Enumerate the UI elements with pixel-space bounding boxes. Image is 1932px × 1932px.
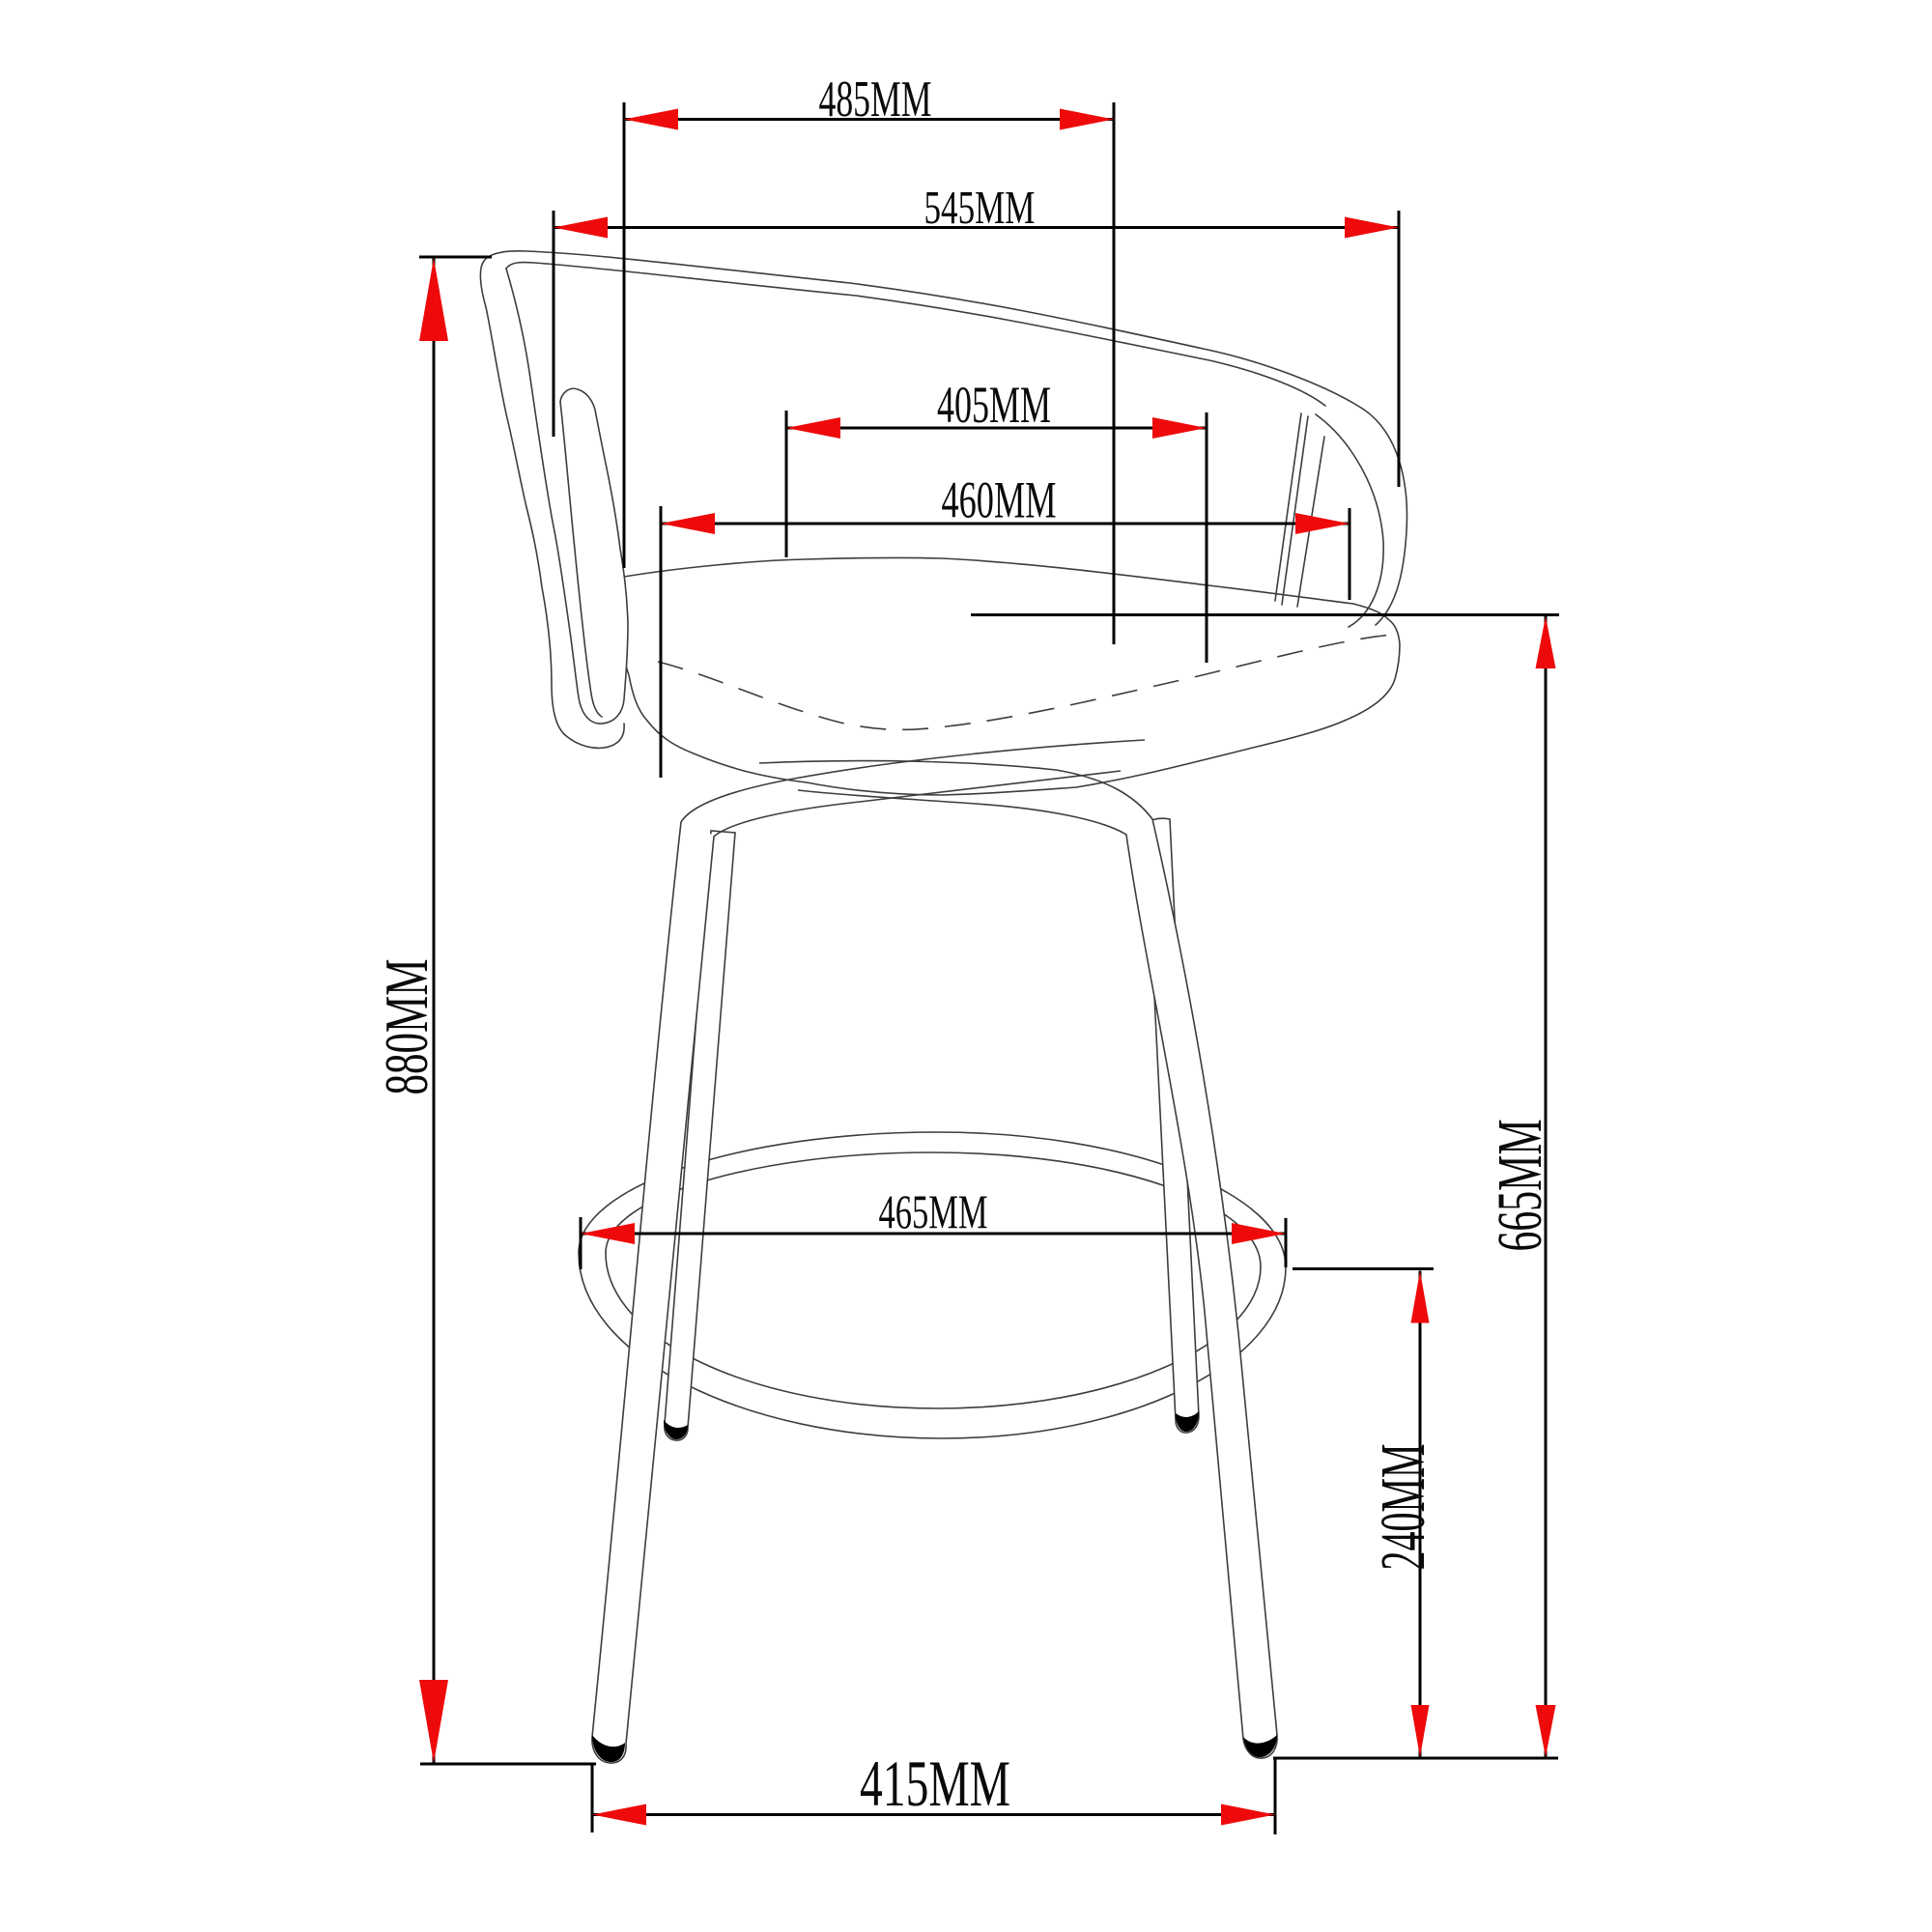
svg-text:485MM: 485MM [819, 71, 932, 128]
svg-text:665MM: 665MM [1485, 1120, 1555, 1252]
svg-text:460MM: 460MM [942, 471, 1057, 529]
svg-text:240MM: 240MM [1368, 1444, 1438, 1571]
svg-text:880MM: 880MM [372, 959, 440, 1095]
svg-text:465MM: 465MM [879, 1184, 988, 1238]
svg-text:545MM: 545MM [924, 181, 1036, 234]
svg-text:405MM: 405MM [937, 376, 1051, 434]
svg-text:415MM: 415MM [860, 1747, 1010, 1820]
